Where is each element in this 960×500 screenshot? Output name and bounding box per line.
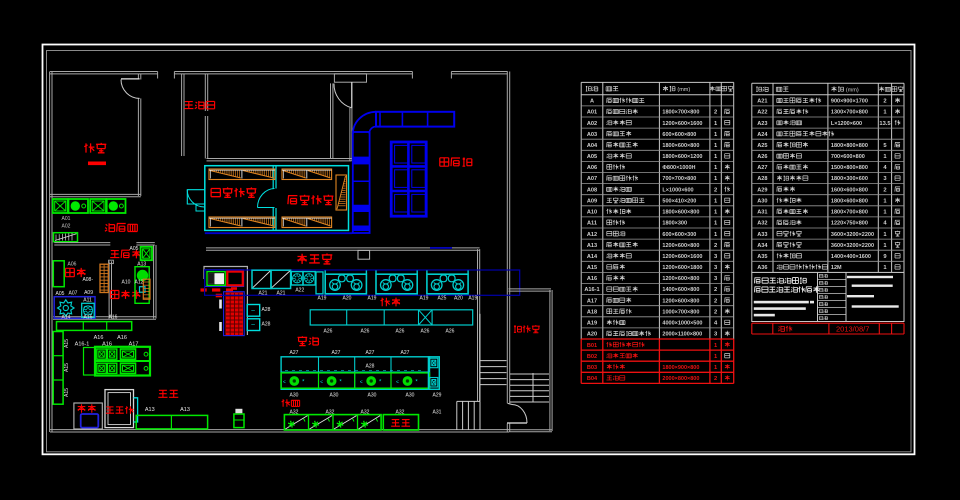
svg-text:A08: A08 [587, 187, 597, 193]
svg-text:~: ~ [251, 322, 255, 329]
svg-text:1500×800×800: 1500×800×800 [831, 165, 868, 171]
svg-text:A16-1: A16-1 [584, 287, 599, 293]
svg-text:A15: A15 [64, 363, 70, 372]
svg-text:1200×600×800: 1200×600×800 [662, 243, 699, 249]
svg-text:<: < [320, 380, 323, 386]
svg-text:A35: A35 [757, 254, 767, 260]
svg-text:A21: A21 [259, 291, 268, 297]
svg-text:1600×600×800: 1600×600×800 [831, 187, 868, 193]
svg-text:A28: A28 [262, 307, 271, 313]
svg-text:A20: A20 [454, 296, 463, 302]
svg-text:1400×600×800: 1400×600×800 [662, 287, 699, 293]
svg-text:A30: A30 [368, 393, 377, 399]
svg-text:1400×400×1600: 1400×400×1600 [831, 254, 871, 260]
svg-text:2: 2 [714, 110, 717, 116]
svg-text:A14: A14 [587, 254, 598, 260]
svg-text:2: 2 [714, 287, 717, 293]
svg-text:A04: A04 [587, 143, 598, 149]
svg-text:1800×600×800: 1800×600×800 [662, 210, 699, 216]
svg-text:A17: A17 [587, 298, 597, 304]
svg-text:A34: A34 [757, 243, 768, 249]
svg-text:A27: A27 [366, 350, 375, 356]
svg-text:B04: B04 [587, 376, 598, 382]
svg-text:A15: A15 [64, 339, 70, 348]
svg-text:1200×600×800: 1200×600×800 [662, 276, 699, 282]
svg-text:A02: A02 [62, 224, 71, 230]
svg-text:A12: A12 [135, 280, 144, 286]
svg-text:A27: A27 [401, 350, 410, 356]
svg-text:A14: A14 [62, 315, 71, 321]
svg-text:A16-1: A16-1 [75, 342, 90, 348]
svg-text:A32: A32 [757, 221, 767, 227]
svg-text:2000×800×800: 2000×800×800 [662, 376, 699, 382]
svg-text:A21: A21 [757, 99, 767, 105]
svg-text:A22: A22 [295, 288, 304, 294]
svg-text:A16: A16 [587, 276, 597, 282]
svg-text:A19: A19 [318, 296, 327, 302]
svg-text:A31: A31 [757, 210, 767, 216]
svg-text:<: < [283, 380, 286, 386]
svg-text:<: < [360, 380, 363, 386]
svg-text:A29: A29 [433, 393, 442, 399]
svg-text:A10: A10 [587, 210, 597, 216]
svg-text:A05: A05 [587, 154, 597, 160]
svg-text:700×700×800: 700×700×800 [662, 176, 696, 182]
svg-text:A36: A36 [757, 265, 767, 271]
svg-text:A25: A25 [438, 296, 447, 302]
svg-text:A16: A16 [94, 335, 104, 341]
svg-text:900×900×1700: 900×900×1700 [831, 99, 868, 105]
svg-text:A19: A19 [587, 321, 597, 327]
svg-text:A16: A16 [109, 315, 118, 321]
svg-text:A24: A24 [757, 132, 768, 138]
svg-text:1200×600×1600: 1200×600×1600 [662, 121, 702, 127]
svg-text:A: A [590, 99, 594, 105]
svg-text:A01: A01 [62, 216, 71, 222]
svg-text:1800×900×800: 1800×900×800 [662, 365, 699, 371]
svg-text:A11: A11 [587, 221, 597, 227]
svg-text:Φ800×1000H: Φ800×1000H [662, 165, 695, 171]
svg-text:1200×600×800: 1200×600×800 [662, 298, 699, 304]
svg-text:(mm): (mm) [846, 88, 859, 94]
svg-text:A28: A28 [262, 322, 271, 328]
svg-text:A19: A19 [468, 296, 477, 302]
svg-text:2: 2 [883, 187, 886, 193]
svg-text:A13: A13 [587, 243, 597, 249]
svg-text:A30: A30 [330, 393, 339, 399]
svg-text:(mm): (mm) [677, 87, 690, 93]
svg-text:1000×700×800: 1000×700×800 [662, 309, 699, 315]
svg-text:A30: A30 [290, 393, 299, 399]
svg-text:A33: A33 [757, 232, 767, 238]
svg-text:2: 2 [714, 243, 717, 249]
svg-text:A05: A05 [56, 291, 65, 297]
svg-text:A26: A26 [396, 329, 405, 335]
svg-text:A01: A01 [587, 110, 597, 116]
svg-text:600×600×800: 600×600×800 [662, 132, 696, 138]
svg-text:500×410×200: 500×410×200 [662, 198, 696, 204]
svg-text:A29: A29 [757, 187, 767, 193]
svg-text:3600×3200×2200: 3600×3200×2200 [831, 232, 874, 238]
svg-text:A15: A15 [64, 388, 70, 397]
svg-text:A13: A13 [145, 407, 155, 413]
svg-text:A28: A28 [366, 364, 375, 370]
svg-text:1800×800×800: 1800×800×800 [831, 143, 868, 149]
svg-text:L×1000×600: L×1000×600 [662, 187, 693, 193]
svg-text:B01: B01 [587, 343, 597, 349]
svg-text:4000×1000×500: 4000×1000×500 [662, 321, 702, 327]
svg-text:1800×300: 1800×300 [662, 221, 687, 227]
svg-text:~: ~ [251, 308, 255, 315]
svg-text:<: < [396, 380, 399, 386]
svg-text:A16: A16 [84, 315, 93, 321]
svg-text:A23: A23 [757, 121, 767, 127]
svg-text:A30: A30 [757, 198, 767, 204]
svg-text:1800×700×800: 1800×700×800 [831, 210, 868, 216]
svg-text:A21: A21 [277, 291, 286, 297]
svg-text:1800×300×600: 1800×300×600 [831, 176, 868, 182]
svg-text:A20: A20 [587, 332, 597, 338]
svg-text:A26: A26 [361, 329, 370, 335]
svg-text:A11: A11 [83, 298, 92, 304]
svg-text:1800×700×800: 1800×700×800 [662, 110, 699, 116]
svg-text:1200×600×1800: 1200×600×1800 [662, 265, 702, 271]
svg-text:A03: A03 [587, 132, 597, 138]
svg-text:3600×3200×2200: 3600×3200×2200 [831, 243, 874, 249]
svg-text:L×1200×600: L×1200×600 [831, 121, 862, 127]
svg-text:2: 2 [714, 376, 717, 382]
svg-text:2: 2 [714, 187, 717, 193]
svg-text:A15: A15 [587, 265, 597, 271]
svg-text:A30: A30 [406, 393, 415, 399]
svg-text:A05: A05 [130, 246, 139, 252]
svg-text:1300×700×800: 1300×700×800 [831, 110, 868, 116]
svg-text:A06: A06 [587, 165, 597, 171]
svg-text:1800×600×1200: 1800×600×1200 [662, 154, 702, 160]
svg-text:A18: A18 [587, 309, 597, 315]
svg-text:A19: A19 [368, 296, 377, 302]
svg-text:B02: B02 [587, 354, 597, 360]
svg-text:A10: A10 [122, 280, 131, 286]
svg-text:A13: A13 [137, 262, 146, 268]
svg-text:A07: A07 [587, 176, 597, 182]
svg-text:1220×750×800: 1220×750×800 [831, 221, 868, 227]
svg-text:700×600×800: 700×600×800 [831, 154, 865, 160]
svg-text:2: 2 [714, 298, 717, 304]
svg-text:A09: A09 [84, 290, 93, 296]
svg-text:A25: A25 [757, 143, 767, 149]
svg-text:A07: A07 [69, 291, 78, 297]
svg-text:A26: A26 [324, 329, 333, 335]
svg-text:A27: A27 [332, 350, 341, 356]
svg-text:A22: A22 [757, 110, 767, 116]
svg-text:A06: A06 [68, 262, 77, 268]
svg-text:B03: B03 [587, 365, 597, 371]
svg-text:A31: A31 [433, 409, 442, 415]
svg-text:A28: A28 [757, 176, 767, 182]
svg-text:2000×1100×800: 2000×1100×800 [662, 332, 702, 338]
svg-text:A02: A02 [587, 121, 597, 127]
svg-text:1200×600×1600: 1200×600×1600 [662, 254, 702, 260]
svg-text:A26: A26 [421, 329, 430, 335]
svg-text:A12: A12 [587, 232, 597, 238]
svg-text:A26: A26 [446, 329, 455, 335]
svg-text:A13: A13 [180, 407, 190, 413]
svg-text:A09: A09 [587, 198, 597, 204]
svg-text:600×600×300: 600×600×300 [662, 232, 696, 238]
svg-text:A27: A27 [290, 350, 299, 356]
svg-text:A08-: A08- [82, 277, 93, 283]
svg-text:1800×600×800: 1800×600×800 [662, 143, 699, 149]
svg-text:A19: A19 [420, 296, 429, 302]
svg-text:12M: 12M [831, 265, 842, 271]
svg-text:A26: A26 [757, 154, 767, 160]
svg-text:A20: A20 [343, 296, 352, 302]
svg-text:2013/08/7: 2013/08/7 [836, 324, 869, 333]
svg-text:1800×600×800: 1800×600×800 [831, 198, 868, 204]
svg-text:13.5: 13.5 [879, 121, 891, 127]
svg-text:A27: A27 [757, 165, 767, 171]
svg-text:A16: A16 [117, 335, 127, 341]
svg-text:2: 2 [714, 309, 717, 315]
svg-text:2: 2 [883, 99, 886, 105]
